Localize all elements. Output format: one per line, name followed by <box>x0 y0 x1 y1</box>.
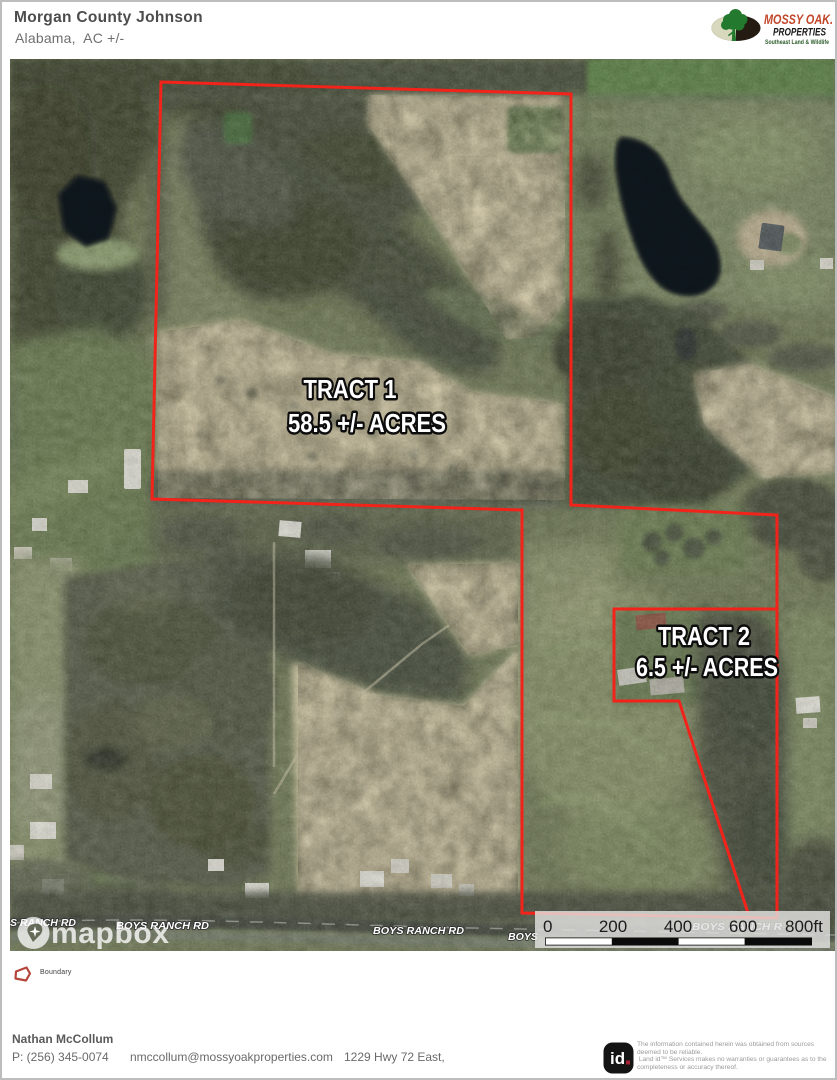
svg-text:6.5 +/- ACRES: 6.5 +/- ACRES <box>636 652 778 682</box>
svg-text:TRACT 1: TRACT 1 <box>304 374 397 404</box>
svg-text:BOYS: BOYS <box>508 932 538 943</box>
svg-text:Southeast Land & Wildlife: Southeast Land & Wildlife <box>765 39 829 46</box>
svg-text:800ft: 800ft <box>785 917 823 936</box>
svg-text:200: 200 <box>599 917 627 936</box>
svg-text:mapbox: mapbox <box>51 917 170 950</box>
svg-text:MOSSY OAK.: MOSSY OAK. <box>764 12 833 27</box>
svg-text:600: 600 <box>729 917 757 936</box>
svg-text:id: id <box>610 1049 625 1068</box>
svg-text:PROPERTIES: PROPERTIES <box>773 27 826 39</box>
svg-text:TRACT 2: TRACT 2 <box>658 621 750 651</box>
svg-text:0: 0 <box>543 917 552 936</box>
svg-text:BOYS RANCH RD: BOYS RANCH RD <box>373 926 464 937</box>
svg-text:400: 400 <box>664 917 692 936</box>
svg-text:58.5 +/- ACRES: 58.5 +/- ACRES <box>288 408 446 438</box>
